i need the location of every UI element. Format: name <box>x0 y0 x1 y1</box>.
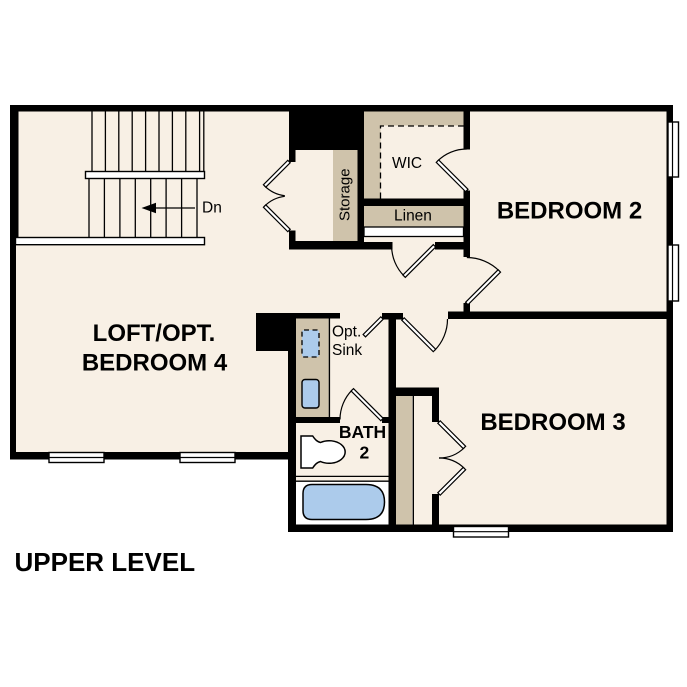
svg-text:BEDROOM 3: BEDROOM 3 <box>480 409 625 436</box>
svg-text:2: 2 <box>360 443 370 463</box>
svg-text:Dn: Dn <box>202 200 222 217</box>
svg-text:Opt.: Opt. <box>332 324 361 341</box>
svg-text:BEDROOM 4: BEDROOM 4 <box>82 350 228 377</box>
svg-text:Linen: Linen <box>394 208 432 225</box>
svg-text:LOFT/OPT.: LOFT/OPT. <box>93 320 216 347</box>
svg-text:BEDROOM 2: BEDROOM 2 <box>497 198 642 225</box>
svg-text:Sink: Sink <box>332 342 362 359</box>
svg-text:UPPER LEVEL: UPPER LEVEL <box>15 547 196 577</box>
svg-text:WIC: WIC <box>392 155 422 172</box>
svg-text:BATH: BATH <box>339 422 386 442</box>
svg-text:Storage: Storage <box>337 168 354 221</box>
